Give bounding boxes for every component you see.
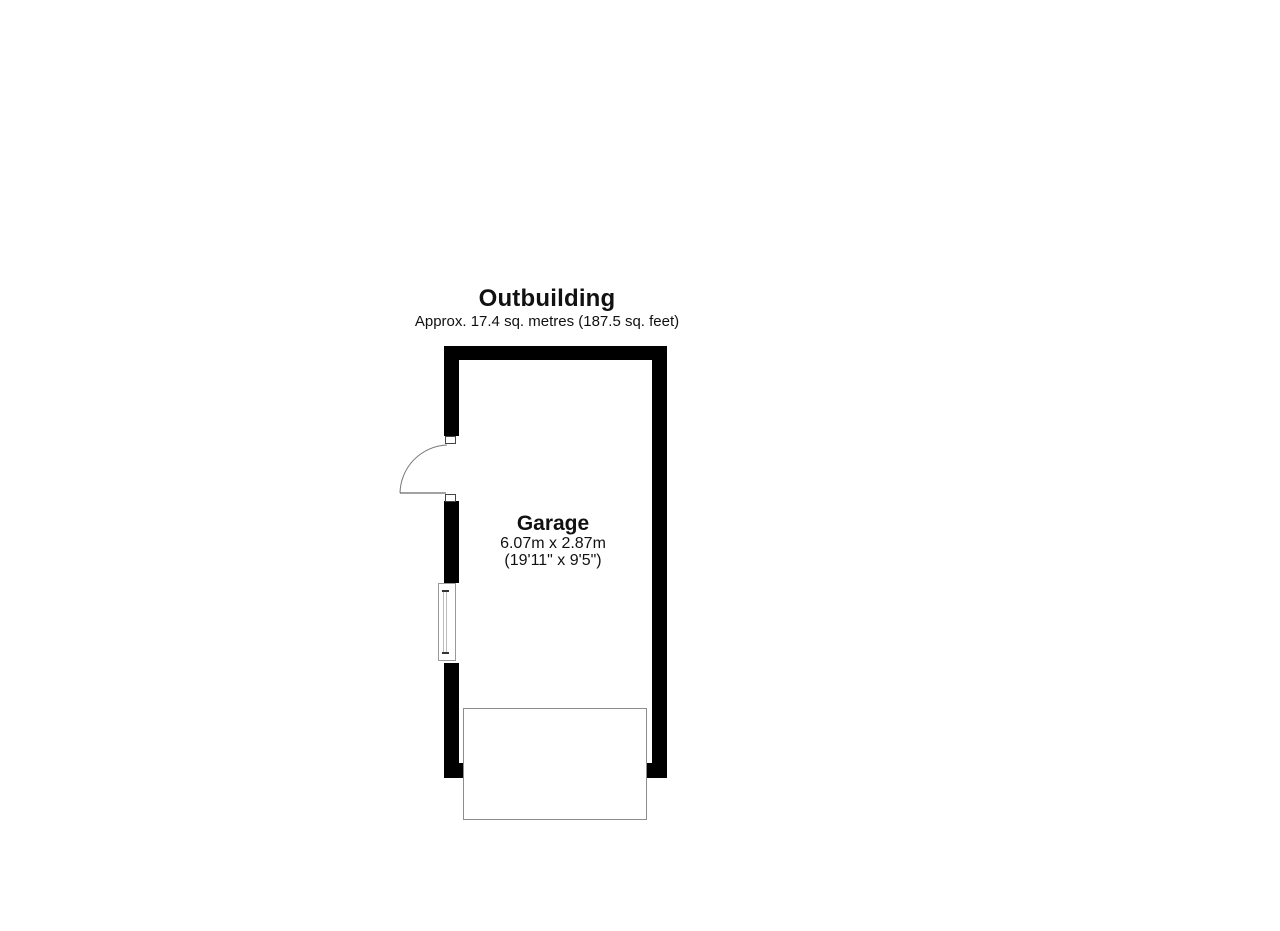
door-jamb-top (445, 436, 456, 444)
wall-left-upper (444, 346, 459, 436)
room-name: Garage (353, 513, 753, 535)
garage-door-opening (463, 708, 647, 820)
window-pane-line (446, 590, 447, 654)
wall-top (444, 346, 667, 360)
wall-right-foot (647, 763, 652, 778)
plan-title-block: Outbuilding Approx. 17.4 sq. metres (187… (347, 286, 747, 330)
room-dimensions-imperial: (19'11" x 9'5") (353, 552, 753, 569)
wall-left-lower (444, 663, 459, 778)
door-jamb-bottom (445, 494, 456, 502)
plan-title: Outbuilding (347, 286, 747, 312)
window-pane-cap (442, 652, 449, 654)
room-dimensions-metric: 6.07m x 2.87m (353, 535, 753, 552)
room-label-block: Garage 6.07m x 2.87m (19'11" x 9'5") (353, 513, 753, 569)
window-pane-line (443, 590, 444, 654)
plan-area-subtitle: Approx. 17.4 sq. metres (187.5 sq. feet) (347, 313, 747, 330)
window-icon (438, 583, 456, 661)
floor-plan-page: Outbuilding Approx. 17.4 sq. metres (187… (0, 0, 1280, 931)
window-pane-cap (442, 590, 449, 592)
